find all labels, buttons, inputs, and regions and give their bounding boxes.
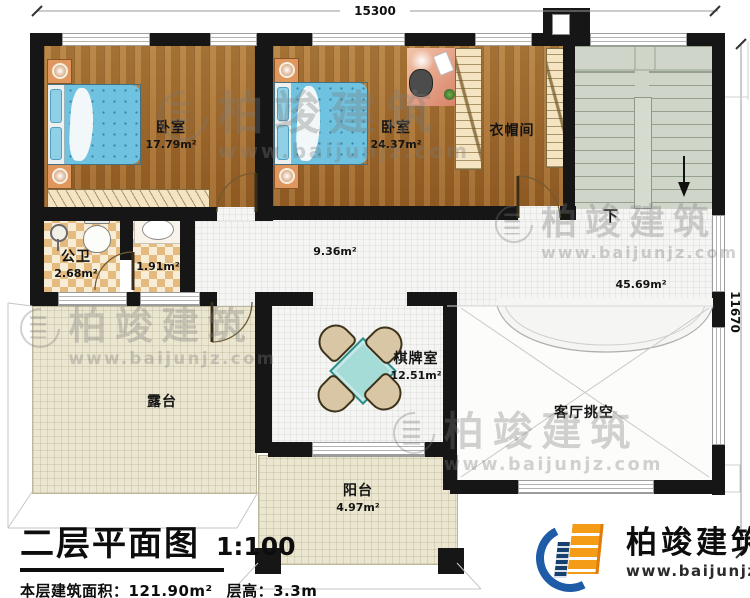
wall-stub (560, 206, 576, 220)
bed-double (47, 84, 141, 165)
window (62, 33, 150, 46)
floor-info: 本层建筑面积：121.90m²层高：3.3m (20, 580, 317, 598)
page-title: 二层平面图 (20, 516, 200, 565)
bed-blanket (68, 88, 94, 162)
window (712, 215, 725, 292)
room-label-bedroom2: 卧室 24.37m² (354, 120, 438, 151)
room-label-cloakroom: 衣帽间 (470, 123, 554, 141)
sink-basin (142, 219, 174, 240)
logo-building (567, 524, 603, 574)
room-label-corridor: 9.36m² (293, 245, 377, 259)
drawing-scale: 1:100 (216, 532, 296, 561)
wall-terrace-top (198, 292, 217, 306)
cloakroom-door-threshold (518, 206, 560, 220)
brand-url: www.baijunjz.com (626, 562, 750, 580)
wall-stairs-left (563, 33, 575, 208)
window (590, 33, 687, 46)
wall-void-left (443, 292, 457, 490)
pillow (50, 127, 62, 161)
window-balcony (312, 442, 425, 457)
room-label-void: 客厅挑空 (542, 405, 626, 423)
stair-center-rail (634, 97, 652, 209)
wall-void-bottom (450, 480, 518, 494)
bed-headboard (48, 85, 65, 164)
wall-bath-divider (120, 215, 133, 260)
title-underline (20, 568, 224, 572)
stair-flight-left (575, 71, 635, 210)
window (712, 327, 725, 445)
room-label-chessroom: 棋牌室 12.51m² (374, 351, 458, 382)
void-floor (457, 306, 712, 480)
bed-headboard (275, 83, 292, 164)
room-label-balcony: 阳台 4.97m² (316, 483, 400, 514)
stair-flight-right (649, 71, 712, 210)
office-chair (409, 69, 433, 97)
nightstand-lamp (274, 164, 299, 189)
brand-name: 柏竣建筑 (626, 526, 750, 562)
balcony-pillar (438, 548, 464, 574)
wall-washroom-right (180, 215, 195, 292)
wall-bedroom-divider (255, 46, 273, 221)
wall-terrace-top (125, 292, 140, 306)
plant (444, 89, 455, 100)
bed-blanket (295, 86, 321, 162)
shower-head (50, 224, 68, 242)
title-block: 二层平面图 1:100 本层建筑面积：121.90m²层高：3.3m (20, 516, 317, 598)
staircase (575, 46, 712, 209)
dimension-top-label: 15300 (340, 4, 410, 18)
wall-terrace-right (255, 306, 272, 453)
room-label-bedroom1: 卧室 17.79m² (129, 120, 213, 151)
wardrobe (455, 48, 482, 170)
room-label-washroom: 1.91m² (116, 260, 200, 274)
stairs-down-label: 下 (603, 205, 618, 226)
wall-bedroom2-bottom (273, 206, 518, 220)
window (518, 480, 654, 494)
pillow (50, 89, 62, 123)
window (58, 292, 127, 306)
room-label-bathroom: 公卫 2.68m² (34, 249, 118, 280)
dimension-right-label: 11670 (728, 282, 742, 342)
desk-lamp (433, 51, 455, 76)
floor-plan: 15300 11670 (0, 0, 750, 598)
window (140, 292, 200, 306)
bump-window (552, 14, 570, 35)
wall-chessroom-bottom (268, 442, 312, 457)
nightstand-lamp (274, 58, 299, 83)
nightstand-lamp (47, 164, 72, 189)
room-label-terrace: 露台 (120, 394, 204, 412)
brand-logo-icon (536, 520, 616, 586)
nightstand-lamp (47, 59, 72, 84)
pillow (277, 125, 289, 159)
wall-void-bottom (652, 480, 713, 494)
wall-terrace-top (30, 292, 58, 306)
wall-chessroom-top (407, 292, 447, 306)
wardrobe (47, 189, 210, 209)
bedroom1-door-threshold (217, 207, 256, 221)
window (312, 33, 405, 46)
wall-chessroom-top (255, 292, 313, 306)
brand-logo: 柏竣建筑 www.baijunjz.com (536, 520, 750, 586)
window (475, 33, 532, 46)
room-label-hall: 45.69m² (599, 278, 683, 292)
pillow (277, 87, 289, 121)
window (210, 33, 257, 46)
